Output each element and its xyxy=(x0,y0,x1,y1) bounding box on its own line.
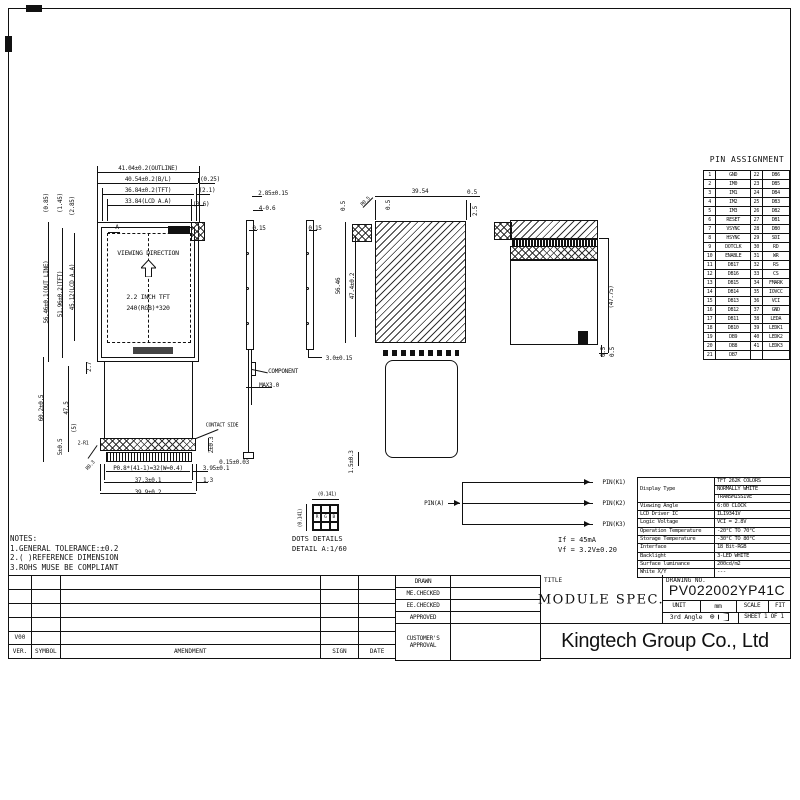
side-bump xyxy=(306,252,309,255)
subpixel-g: G xyxy=(321,513,329,521)
dim-line xyxy=(196,464,197,491)
pin-cell: 9 xyxy=(704,243,716,252)
dim-line xyxy=(86,362,87,374)
pin-cell: DB4 xyxy=(762,189,789,198)
dim-label: 2.85±0.15 xyxy=(258,191,288,197)
dots-details-label: DOTS DETAILS xyxy=(292,535,343,543)
subpixel-cell xyxy=(313,505,321,513)
approval-row: DRAWN xyxy=(396,576,541,588)
spec-value: VCI = 2.8V xyxy=(715,519,791,527)
side-bump xyxy=(246,322,249,325)
dim-line xyxy=(249,230,257,231)
dim-line xyxy=(345,222,346,343)
pin-k3-label: PIN(K3) xyxy=(602,522,625,528)
dim-label: A xyxy=(115,225,118,231)
spec-label: Viewing Angle xyxy=(638,502,715,510)
pin-cell: ENABLE xyxy=(716,252,751,261)
revision-header: AMENDMENT xyxy=(60,645,320,659)
dim-line xyxy=(462,482,463,525)
pin-cell: IM0 xyxy=(716,180,751,189)
note-item: 1.GENERAL TOLERANCE:±0.2 xyxy=(10,544,118,554)
dim-line xyxy=(191,199,192,221)
revision-cell: V00 xyxy=(9,631,32,645)
back-view-2-component xyxy=(578,331,588,344)
dim-line xyxy=(306,504,307,531)
dim-line xyxy=(448,503,460,504)
dim-line xyxy=(466,200,467,220)
fpc-foot xyxy=(253,452,254,459)
revision-cell xyxy=(31,631,60,645)
dim-label: 37.3±0.1 xyxy=(135,478,162,484)
rgb-pixel-diagram: R G B xyxy=(312,504,339,531)
pin-cell: IM1 xyxy=(716,189,751,198)
dim-label: 39.54 xyxy=(412,189,429,195)
dim-label: 4-0.6 xyxy=(259,206,276,212)
dim-line xyxy=(599,238,608,239)
pin-cell: RESET xyxy=(716,216,751,225)
viewing-direction-label: VIEWING DIRECTION xyxy=(117,250,178,257)
dim-line xyxy=(192,471,208,472)
dim-label: 5±0.5 xyxy=(58,439,64,456)
pin-cell: IOVCC xyxy=(762,288,789,297)
dim-line xyxy=(98,183,198,184)
dim-line xyxy=(100,464,101,491)
pin-row: 19DB940LEDK2 xyxy=(704,333,790,342)
pin-cell: CS xyxy=(762,270,789,279)
side-bump xyxy=(306,322,309,325)
revision-cell xyxy=(60,576,320,590)
pin-cell: 25 xyxy=(751,198,762,207)
fpc-tail xyxy=(308,350,309,357)
spec-label: Surface luminance xyxy=(638,560,715,568)
dim-line xyxy=(208,438,209,451)
pin-row: 5IM326DB2 xyxy=(704,207,790,216)
pin-row: 8HSYNC29SDI xyxy=(704,234,790,243)
document-title: MODULE SPEC. xyxy=(538,594,664,607)
spec-label: Display Type xyxy=(638,478,715,503)
pin-row: 4IM225DB3 xyxy=(704,198,790,207)
pin-row: 1GND22DB6 xyxy=(704,171,790,180)
pin-cell: 1 xyxy=(704,171,716,180)
dim-line xyxy=(102,194,194,195)
pin-cell: 40 xyxy=(751,333,762,342)
revision-cell xyxy=(60,631,320,645)
dim-label: (47.75) xyxy=(609,285,615,308)
spec-row: Storage Temperature-30°C TO 80°C xyxy=(638,536,791,544)
subpixel-cell xyxy=(313,522,321,530)
spec-value: --- xyxy=(715,569,791,577)
fpc-stiffener xyxy=(100,438,196,451)
dim-line xyxy=(100,493,196,494)
dim-line xyxy=(375,200,376,220)
spec-value: 18 Bit-RGB xyxy=(715,544,791,552)
revision-cell xyxy=(359,617,396,631)
dim-line xyxy=(102,188,103,221)
dim-line xyxy=(462,482,593,483)
pin-cell: 19 xyxy=(704,333,716,342)
viewing-direction-arrow-icon xyxy=(141,260,156,277)
revision-cell xyxy=(320,617,359,631)
dim-label: (0.85) xyxy=(44,193,50,213)
front-view-fpc-tab xyxy=(168,226,190,234)
revision-header: VER. xyxy=(9,645,32,659)
detail-a-leader xyxy=(108,232,120,233)
dim-label: 0.5 xyxy=(386,200,392,210)
revision-header: DATE xyxy=(359,645,396,659)
pin-cell: 20 xyxy=(704,342,716,351)
dim-label: 0.5 xyxy=(610,347,616,357)
pin-cell: DB5 xyxy=(762,180,789,189)
dim-label: 2.5 xyxy=(473,206,479,216)
pin-cell: 37 xyxy=(751,306,762,315)
pin-cell: VCI xyxy=(762,297,789,306)
dim-label: 47.5 xyxy=(64,401,70,414)
drawing-number: PV022002YP41C xyxy=(669,583,785,597)
approval-table: DRAWNME.CHECKEDEE.CHECKEDAPPROVEDCUSTOME… xyxy=(395,575,541,661)
dim-line xyxy=(104,482,192,483)
pin-cell: RD xyxy=(762,243,789,252)
folded-fpc-outline xyxy=(385,360,458,458)
unit-label: UNIT xyxy=(672,603,685,609)
pin-cell: SDI xyxy=(762,234,789,243)
pin-cell: GND xyxy=(762,306,789,315)
pin-cell: 24 xyxy=(751,189,762,198)
pin-row: 21DB7 xyxy=(704,351,790,360)
spec-row: Logic VoltageVCI = 2.8V xyxy=(638,519,791,527)
dim-line xyxy=(62,228,63,358)
revision-header-row: VER.SYMBOLAMENDMENTSIGNDATE xyxy=(9,645,396,659)
dim-line xyxy=(196,482,208,483)
revision-cell xyxy=(359,631,396,645)
pin-cell: DB7 xyxy=(716,351,751,360)
pin-cell: VSYNC xyxy=(716,225,751,234)
notes-heading: NOTES: xyxy=(10,534,118,544)
dim-line xyxy=(253,210,263,211)
pin-cell: 3 xyxy=(704,189,716,198)
pin-cell: GND xyxy=(716,171,751,180)
side-view-1 xyxy=(246,220,254,350)
scale-value: FIT xyxy=(775,603,785,609)
pin-row: 6RESET27DB1 xyxy=(704,216,790,225)
revision-cell xyxy=(9,589,32,603)
pin-cell: DB0 xyxy=(762,225,789,234)
spec-label: Interface xyxy=(638,544,715,552)
pin-cell: 29 xyxy=(751,234,762,243)
pin-row: 17DB1138LEDA xyxy=(704,315,790,324)
dim-line xyxy=(312,499,339,500)
pin-cell: 34 xyxy=(751,279,762,288)
dim-line xyxy=(252,196,262,197)
pin-assignment-table: 1GND22DB62IM023DB53IM124DB44IM225DB35IM3… xyxy=(703,170,790,360)
pin-k2-label: PIN(K2) xyxy=(602,501,625,507)
fpc-edge xyxy=(192,362,193,438)
approval-signature-cell[interactable] xyxy=(451,600,541,612)
spec-label: Logic Voltage xyxy=(638,519,715,527)
dim-line xyxy=(309,230,317,231)
pin-cell: 38 xyxy=(751,315,762,324)
pin-row: 16DB1237GND xyxy=(704,306,790,315)
pin-cell: LEDK3 xyxy=(762,342,789,351)
pin-cell: 27 xyxy=(751,216,762,225)
pin-cell: 2 xyxy=(704,180,716,189)
approval-row: ME.CHECKED xyxy=(396,588,541,600)
approval-signature-cell[interactable] xyxy=(451,612,541,624)
pin-cell: LEDK1 xyxy=(762,324,789,333)
pin-row: 3IM124DB4 xyxy=(704,189,790,198)
size-label: 2.2 INCH TFT xyxy=(126,294,169,301)
spec-label: Operation Temperature xyxy=(638,527,715,535)
revision-row: V00 xyxy=(9,631,396,645)
subpixel-cell xyxy=(321,522,329,530)
pin-row: 7VSYNC28DB0 xyxy=(704,225,790,234)
dim-line xyxy=(97,166,98,222)
dim-label: 0.15 xyxy=(308,226,321,232)
pin-cell: 13 xyxy=(704,279,716,288)
subpixel-r: R xyxy=(313,513,321,521)
spec-label: LCD Driver IC xyxy=(638,511,715,519)
revision-cell xyxy=(31,576,60,590)
pin-cell: 17 xyxy=(704,315,716,324)
pin-cell: 7 xyxy=(704,225,716,234)
revision-row xyxy=(9,576,396,590)
spec-row: Operation Temperature-20°C TO 70°C xyxy=(638,527,791,535)
pin-a-label: PIN(A) xyxy=(424,501,444,507)
pin-cell: 26 xyxy=(751,207,762,216)
pin-cell: 33 xyxy=(751,270,762,279)
pin-cell: DB9 xyxy=(716,333,751,342)
dim-line xyxy=(106,471,190,472)
dim-label: (2.85) xyxy=(70,196,76,216)
pin-row: 18DB1039LEDK1 xyxy=(704,324,790,333)
revision-cell xyxy=(60,603,320,617)
pin-cell: WR xyxy=(762,252,789,261)
revision-cell xyxy=(320,576,359,590)
spec-row: LCD Driver ICILI9341V xyxy=(638,511,791,519)
pin-cell: HSYNC xyxy=(716,234,751,243)
pin-cell: DB12 xyxy=(716,306,751,315)
spec-value: TRANSMISSIVE xyxy=(715,494,791,502)
dim-label: 0.15 xyxy=(252,226,265,232)
detail-scale-label: DETAIL A:1/60 xyxy=(292,545,347,553)
approval-row: CUSTOMER'S APPROVAL xyxy=(396,624,541,661)
approval-label: ME.CHECKED xyxy=(396,588,451,600)
fpc-foot xyxy=(243,452,244,459)
pin-cell: 6 xyxy=(704,216,716,225)
spec-value: NORMALLY WHITE xyxy=(715,486,791,494)
component-row xyxy=(383,350,459,356)
approval-row: APPROVED xyxy=(396,612,541,624)
dim-label: 1.3 xyxy=(203,478,213,484)
back-view-2-stiffener xyxy=(510,246,598,260)
registration-mark xyxy=(26,5,42,12)
pin-cell: DB2 xyxy=(762,207,789,216)
pin-cell: IM3 xyxy=(716,207,751,216)
spec-value: TFT 262K COLORS xyxy=(715,478,791,486)
spec-label: White X/Y xyxy=(638,569,715,577)
revision-cell xyxy=(60,617,320,631)
pin-cell: RS xyxy=(762,261,789,270)
dim-line xyxy=(601,345,602,357)
spec-value: 3-LED WHITE xyxy=(715,552,791,560)
projection-symbol-icon: ⊕ xyxy=(710,613,715,621)
pin-cell: 21 xyxy=(704,351,716,360)
pin-row: 13DB1534FMARK xyxy=(704,279,790,288)
pin-cell: 4 xyxy=(704,198,716,207)
spec-value: ILI9341V xyxy=(715,511,791,519)
dim-line xyxy=(462,503,593,504)
spec-table: Display TypeTFT 262K COLORSNORMALLY WHIT… xyxy=(637,477,791,578)
pin-cell: FMARK xyxy=(762,279,789,288)
pin-cell: DB8 xyxy=(716,342,751,351)
dim-line xyxy=(375,196,466,197)
pin-cell: 41 xyxy=(751,342,762,351)
pin-cell: 8 xyxy=(704,234,716,243)
approval-row: EE.CHECKED xyxy=(396,600,541,612)
note-item: 2.( )REFERENCE DIMENSION xyxy=(10,553,118,563)
pin-cell: 15 xyxy=(704,297,716,306)
dim-line xyxy=(246,387,272,388)
revision-header: SYMBOL xyxy=(31,645,60,659)
subpixel-cell xyxy=(321,505,329,513)
dim-line xyxy=(462,524,593,525)
dim-line xyxy=(68,366,69,452)
pin-cell: 22 xyxy=(751,171,762,180)
spec-value: 6:00 CLOCK xyxy=(715,502,791,510)
pin-cell: LEDK2 xyxy=(762,333,789,342)
dim-label: 3.0±0.15 xyxy=(326,356,353,362)
pin-cell: 14 xyxy=(704,288,716,297)
dim-line xyxy=(74,233,75,341)
pin-cell: 32 xyxy=(751,261,762,270)
fpc-tail xyxy=(248,350,249,452)
dim-line xyxy=(466,196,480,197)
pin-cell: DB14 xyxy=(716,288,751,297)
pin-cell: DB10 xyxy=(716,324,751,333)
registration-mark xyxy=(5,36,12,52)
spec-label: Storage Temperature xyxy=(638,536,715,544)
dim-line xyxy=(191,205,204,206)
driver-ic xyxy=(133,347,173,354)
led-voltage: Vf = 3.2V±0.20 xyxy=(558,546,617,554)
spec-row: Viewing Angle6:00 CLOCK xyxy=(638,502,791,510)
approval-label: APPROVED xyxy=(396,612,451,624)
revision-row xyxy=(9,589,396,603)
dim-line xyxy=(199,183,215,184)
pin-k1-label: PIN(K1) xyxy=(602,480,625,486)
dots-dim-v: (0.141) xyxy=(299,509,304,528)
revision-cell xyxy=(31,603,60,617)
side-bump xyxy=(246,287,249,290)
pin-cell xyxy=(751,351,762,360)
revision-table: V00VER.SYMBOLAMENDMENTSIGNDATE xyxy=(8,575,396,659)
approval-label: DRAWN xyxy=(396,576,451,588)
spec-label: Backlight xyxy=(638,552,715,560)
dim-line xyxy=(308,357,322,358)
pin-cell: DOTCLK xyxy=(716,243,751,252)
fpc-tail xyxy=(251,350,252,405)
back-view-2-glass-band xyxy=(510,220,598,239)
pin-cell: DB17 xyxy=(716,261,751,270)
pin-cell: 36 xyxy=(751,297,762,306)
pin-cell: DB16 xyxy=(716,270,751,279)
notes-block: NOTES: 1.GENERAL TOLERANCE:±0.2 2.( )REF… xyxy=(10,534,118,572)
fpc-contact-fingers xyxy=(106,452,192,462)
scale-label: SCALE xyxy=(744,603,761,609)
dim-label: 51.96±0.2(TFT) xyxy=(58,271,64,317)
title-label: TITLE xyxy=(544,577,562,584)
dim-line xyxy=(608,238,609,353)
spec-row: Interface18 Bit-RGB xyxy=(638,544,791,552)
spec-value: 200cd/m2 xyxy=(715,560,791,568)
dim-label: (5) xyxy=(72,423,78,433)
pin-cell: DB6 xyxy=(762,171,789,180)
pin-cell: DB1 xyxy=(762,216,789,225)
subpixel-cell xyxy=(330,522,338,530)
dim-line xyxy=(470,203,471,217)
spec-row: Surface luminance200cd/m2 xyxy=(638,560,791,568)
pin-cell: 10 xyxy=(704,252,716,261)
led-current: If = 45mA xyxy=(558,536,596,544)
back-view-1 xyxy=(375,221,466,343)
pin-assignment-title: PIN ASSIGNMENT xyxy=(710,156,784,164)
drawing-sheet: VIEWING DIRECTION 2.2 INCH TFT 240(RGB)*… xyxy=(0,0,800,800)
revision-row xyxy=(9,617,396,631)
pin-row: 9DOTCLK30RD xyxy=(704,243,790,252)
dim-label: MAX3.0 xyxy=(259,383,279,389)
unit-value: mm xyxy=(714,603,721,610)
dim-label: 2±0.3 xyxy=(209,437,215,454)
dim-line xyxy=(97,172,199,173)
revision-cell xyxy=(31,589,60,603)
pin-cell: 18 xyxy=(704,324,716,333)
pin-row: 12DB1633CS xyxy=(704,270,790,279)
dim-label: 2-R1 xyxy=(78,442,89,447)
approval-label: EE.CHECKED xyxy=(396,600,451,612)
approval-signature-cell[interactable] xyxy=(451,576,541,588)
dim-label: 56.46 xyxy=(336,278,342,295)
revision-cell xyxy=(9,603,32,617)
revision-header: SIGN xyxy=(320,645,359,659)
dim-line xyxy=(104,464,105,480)
projection-angle-label: 3rd Angle xyxy=(670,614,703,621)
spec-row: Backlight3-LED WHITE xyxy=(638,552,791,560)
side-bump xyxy=(246,252,249,255)
approval-signature-cell[interactable] xyxy=(451,588,541,600)
pin-cell: DB3 xyxy=(762,198,789,207)
approval-signature-cell[interactable] xyxy=(451,624,541,661)
spec-value: -20°C TO 70°C xyxy=(715,527,791,535)
pin-cell: 23 xyxy=(751,180,762,189)
pin-cell: 5 xyxy=(704,207,716,216)
approval-label: CUSTOMER'S APPROVAL xyxy=(396,624,451,661)
revision-cell xyxy=(31,617,60,631)
dim-line xyxy=(107,205,191,206)
resolution-label: 240(RGB)*320 xyxy=(126,305,169,312)
dim-label: COMPONENT xyxy=(268,369,298,375)
pin-cell: 12 xyxy=(704,270,716,279)
subpixel-cell xyxy=(330,505,338,513)
company-name: Kingtech Group Co., Ltd xyxy=(561,631,769,651)
dim-line xyxy=(196,194,210,195)
dim-line xyxy=(43,357,44,462)
revision-cell xyxy=(359,576,396,590)
pin-cell: 39 xyxy=(751,324,762,333)
pin-row: 15DB1336VCI xyxy=(704,297,790,306)
pin-cell xyxy=(762,351,789,360)
pin-cell: 35 xyxy=(751,288,762,297)
revision-cell xyxy=(320,603,359,617)
dim-label: 0.15±0.03 xyxy=(219,460,249,466)
